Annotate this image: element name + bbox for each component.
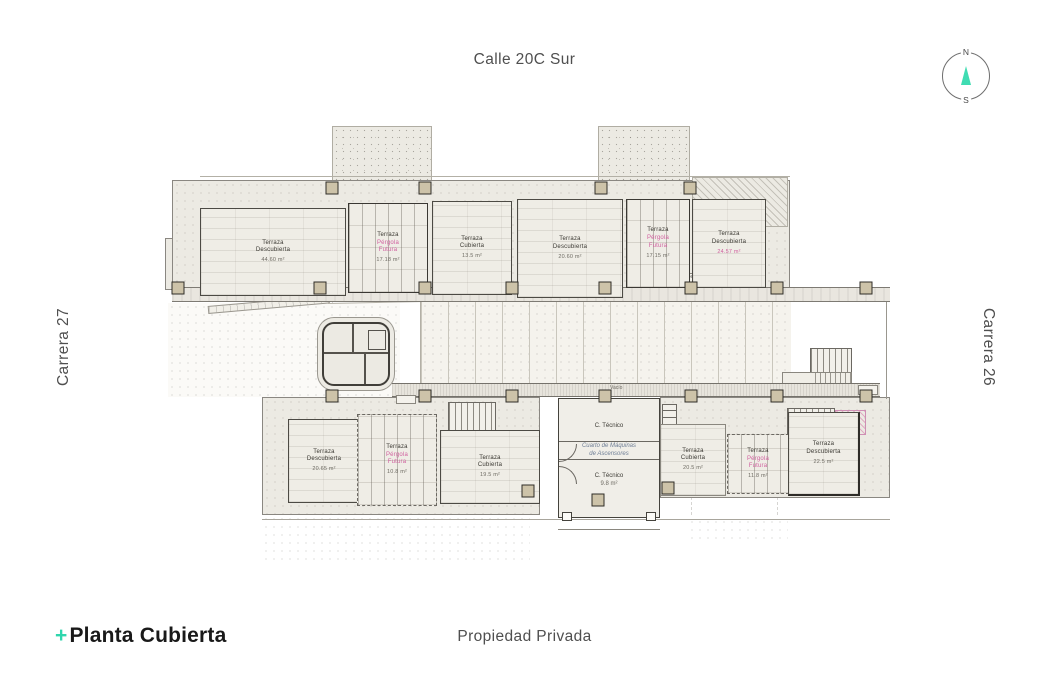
building-edge-line — [886, 289, 887, 399]
column — [595, 182, 608, 195]
ground-stipple-apron — [262, 515, 530, 565]
room-l1: TerrazaDescubierta20.65 m² — [288, 419, 360, 503]
column — [662, 482, 675, 495]
stair-lower-left — [448, 402, 496, 432]
column — [506, 390, 519, 403]
room-l2: TerrazaPérgolaFutura10.8 m² — [357, 414, 437, 506]
column — [522, 485, 535, 498]
room-l6: TerrazaDescubierta22.5 m² — [788, 412, 860, 496]
foundation-foot — [562, 512, 572, 521]
core-wall — [364, 352, 366, 384]
machine-room-label-top: C. Técnico — [559, 423, 659, 429]
column — [314, 282, 327, 295]
skylight-roof-panels — [420, 302, 791, 383]
column — [419, 282, 432, 295]
column — [599, 282, 612, 295]
column — [685, 282, 698, 295]
column — [685, 390, 698, 403]
walkway-tag-box — [396, 395, 416, 404]
room-u2: TerrazaPérgolaFutura17.18 m² — [348, 203, 428, 293]
floor-plan: C. Técnico Cuarto de Máquinas de Ascenso… — [0, 0, 1049, 700]
column — [506, 282, 519, 295]
room-label: TerrazaDescubierta44.60 m² — [256, 240, 290, 265]
core-cabin — [368, 330, 386, 350]
room-label: TerrazaCubierta13.5 m² — [460, 236, 484, 261]
pedestrian-walkway — [392, 383, 880, 397]
room-label: TerrazaCubierta19.5 m² — [478, 455, 502, 480]
column — [592, 494, 605, 507]
column — [326, 390, 339, 403]
room-l5: TerrazaPérgolaFutura11.8 m² — [727, 434, 789, 494]
room-label: TerrazaPérgolaFutura17.18 m² — [376, 232, 399, 265]
room-u6: TerrazaDescubierta24.57 m² — [692, 199, 766, 288]
ground-line — [262, 519, 890, 520]
neighbour-roof-patch — [598, 126, 690, 181]
stair-right — [810, 348, 852, 374]
room-label: TerrazaPérgolaFutura10.8 m² — [386, 444, 408, 477]
interior-wall — [559, 441, 659, 442]
column — [599, 390, 612, 403]
column — [326, 182, 339, 195]
base-line — [558, 529, 660, 530]
core-wall — [352, 324, 354, 352]
foundation-foot — [646, 512, 656, 521]
column — [419, 390, 432, 403]
room-label: TerrazaDescubierta22.5 m² — [806, 441, 840, 466]
elevator-machine-room: C. Técnico Cuarto de Máquinas de Ascenso… — [558, 398, 660, 518]
core-wall — [324, 352, 388, 354]
room-label: TerrazaDescubierta20.65 m² — [307, 449, 341, 474]
interior-wall — [559, 459, 659, 460]
column — [860, 282, 873, 295]
room-u5: TerrazaPérgolaFutura17.15 m² — [626, 199, 690, 288]
room-label: TerrazaDescubierta20.60 m² — [553, 236, 587, 261]
room-u3: TerrazaCubierta13.5 m² — [432, 201, 512, 295]
room-label: TerrazaCubierta20.5 m² — [681, 448, 705, 473]
column — [771, 282, 784, 295]
column — [684, 182, 697, 195]
room-label: TerrazaPérgolaFutura11.8 m² — [747, 448, 769, 481]
room-label: TerrazaPérgolaFutura17.15 m² — [646, 227, 669, 260]
room-label: TerrazaDescubierta24.57 m² — [712, 231, 746, 256]
column — [860, 390, 873, 403]
column — [172, 282, 185, 295]
ground-stipple-apron — [688, 518, 788, 544]
column — [419, 182, 432, 195]
neighbour-roof-patch — [332, 126, 432, 181]
column — [771, 390, 784, 403]
sheet: Calle 20C Sur Carrera 27 Carrera 26 Prop… — [0, 0, 1049, 700]
